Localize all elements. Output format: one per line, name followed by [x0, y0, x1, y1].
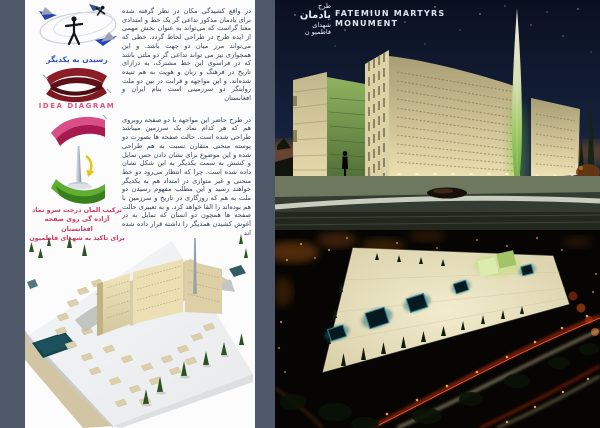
title-fa-line: فاطمیو ن	[285, 29, 331, 36]
night-elevation-render: طرح یادمان شهدای فاطمیو ن FATEMIUN MARTY…	[275, 0, 600, 230]
massing-diagram-magenta	[47, 111, 109, 149]
left-white-panel: رسیدن به یکدیگر IDEA DIAGRAM	[25, 0, 255, 428]
title-en-line: MONUMENT	[335, 19, 445, 29]
person-silhouette	[66, 16, 82, 44]
model-spire	[193, 238, 197, 294]
plaza-ground	[275, 176, 600, 230]
monument-pillar-column	[365, 50, 389, 186]
monument-right-wall	[531, 98, 580, 178]
concept-sketch-figure	[31, 2, 125, 54]
idea-diagram-title: IDEA DIAGRAM	[31, 102, 123, 110]
description-paragraph-2: در طرح حاضر این مواجهه با دو صفحه روبروی…	[122, 116, 251, 238]
model-aerial-render	[25, 232, 255, 428]
description-text-column: در واقع کشیدگی مکان در نظر گرفته شده برا…	[122, 7, 251, 237]
description-paragraph-1: در واقع کشیدگی مکان در نظر گرفته شده برا…	[122, 7, 251, 103]
model-sunken-court	[229, 265, 246, 277]
presentation-board: رسیدن به یکدیگر IDEA DIAGRAM	[0, 0, 600, 428]
title-en-line: FATEMIUN MARTYRS	[335, 9, 445, 19]
monument-left-wall	[293, 72, 327, 186]
project-title-english: FATEMIUN MARTYRS MONUMENT	[335, 9, 445, 30]
massing-diagram-maroon	[41, 63, 113, 103]
model-aerial-drawing	[25, 232, 255, 428]
model-sunken-court	[27, 279, 38, 289]
person-silhouette	[93, 3, 107, 18]
night-aerial-drawing	[275, 230, 600, 428]
project-title-farsi: طرح یادمان شهدای فاطمیو ن	[285, 3, 331, 37]
yellow-arrow-icon	[86, 156, 95, 177]
title-fa-line: طرح	[285, 3, 331, 10]
massing-diagram-green	[47, 176, 109, 210]
night-aerial-render	[275, 230, 600, 428]
concept-caption-line: ترکیب المان درخت سرو نماد	[29, 206, 125, 215]
